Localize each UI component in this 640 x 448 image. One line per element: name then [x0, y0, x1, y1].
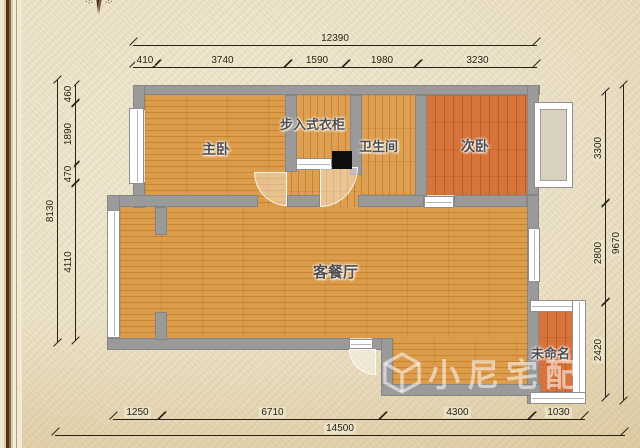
wall — [454, 195, 527, 207]
entrance-door-leaf — [349, 339, 373, 349]
compass-north-icon — [84, 0, 114, 16]
window — [107, 210, 120, 338]
wall — [287, 195, 320, 207]
dim-right-seg: 2800 — [596, 203, 610, 302]
living-dining-label: 客餐厅 — [313, 261, 358, 282]
wall-stub — [155, 207, 167, 235]
wall — [133, 85, 145, 110]
page-frame-edge — [0, 0, 24, 448]
wall — [415, 95, 427, 196]
dim-bottom-seg: 6710 — [162, 410, 383, 424]
dim-top-total: 12390 — [133, 36, 537, 50]
watermark-text: 小尼宅配 — [428, 350, 584, 396]
dim-top-seg: 3740 — [157, 58, 288, 72]
dim-right-seg: 2420 — [596, 302, 610, 397]
dim-right-total: 9670 — [614, 85, 628, 400]
dim-top-seg: 3230 — [418, 58, 537, 72]
wall — [358, 195, 424, 207]
master-bedroom-label: 主卧 — [202, 139, 230, 159]
dim-left-seg: 4110 — [66, 183, 80, 340]
dim-bottom-total: 14500 — [55, 426, 625, 440]
dim-top-seg: 1980 — [346, 58, 418, 72]
entrance-door-swing-arc — [349, 349, 376, 375]
watermark: 小尼宅配 — [383, 350, 584, 396]
cube-logo-icon — [383, 352, 421, 394]
bay-window-sill — [540, 109, 567, 181]
dim-bottom-seg: 1250 — [113, 410, 162, 424]
dim-right-seg: 3300 — [596, 92, 610, 203]
second-bedroom-label: 次卧 — [461, 136, 489, 156]
door-opening — [424, 196, 454, 208]
window — [528, 228, 540, 282]
dim-top-seg: 1590 — [288, 58, 346, 72]
dim-bottom-seg: 1030 — [532, 410, 585, 424]
dim-bottom-seg: 4300 — [383, 410, 532, 424]
structural-column — [332, 151, 352, 169]
wall — [108, 195, 258, 207]
window — [129, 108, 144, 184]
bathroom-label: 卫生间 — [359, 136, 398, 155]
walkin-closet-label: 步入式衣柜 — [280, 114, 345, 133]
dim-left-seg: 1890 — [66, 103, 80, 165]
dim-left-total: 8130 — [48, 80, 62, 342]
wall — [133, 85, 540, 95]
wall — [107, 338, 350, 350]
wall-stub — [155, 312, 167, 340]
floor-plan-canvas: 主卧 步入式衣柜 卫生间 次卧 客餐厅 未命名 小尼宅配 12390 410 3… — [0, 0, 640, 448]
